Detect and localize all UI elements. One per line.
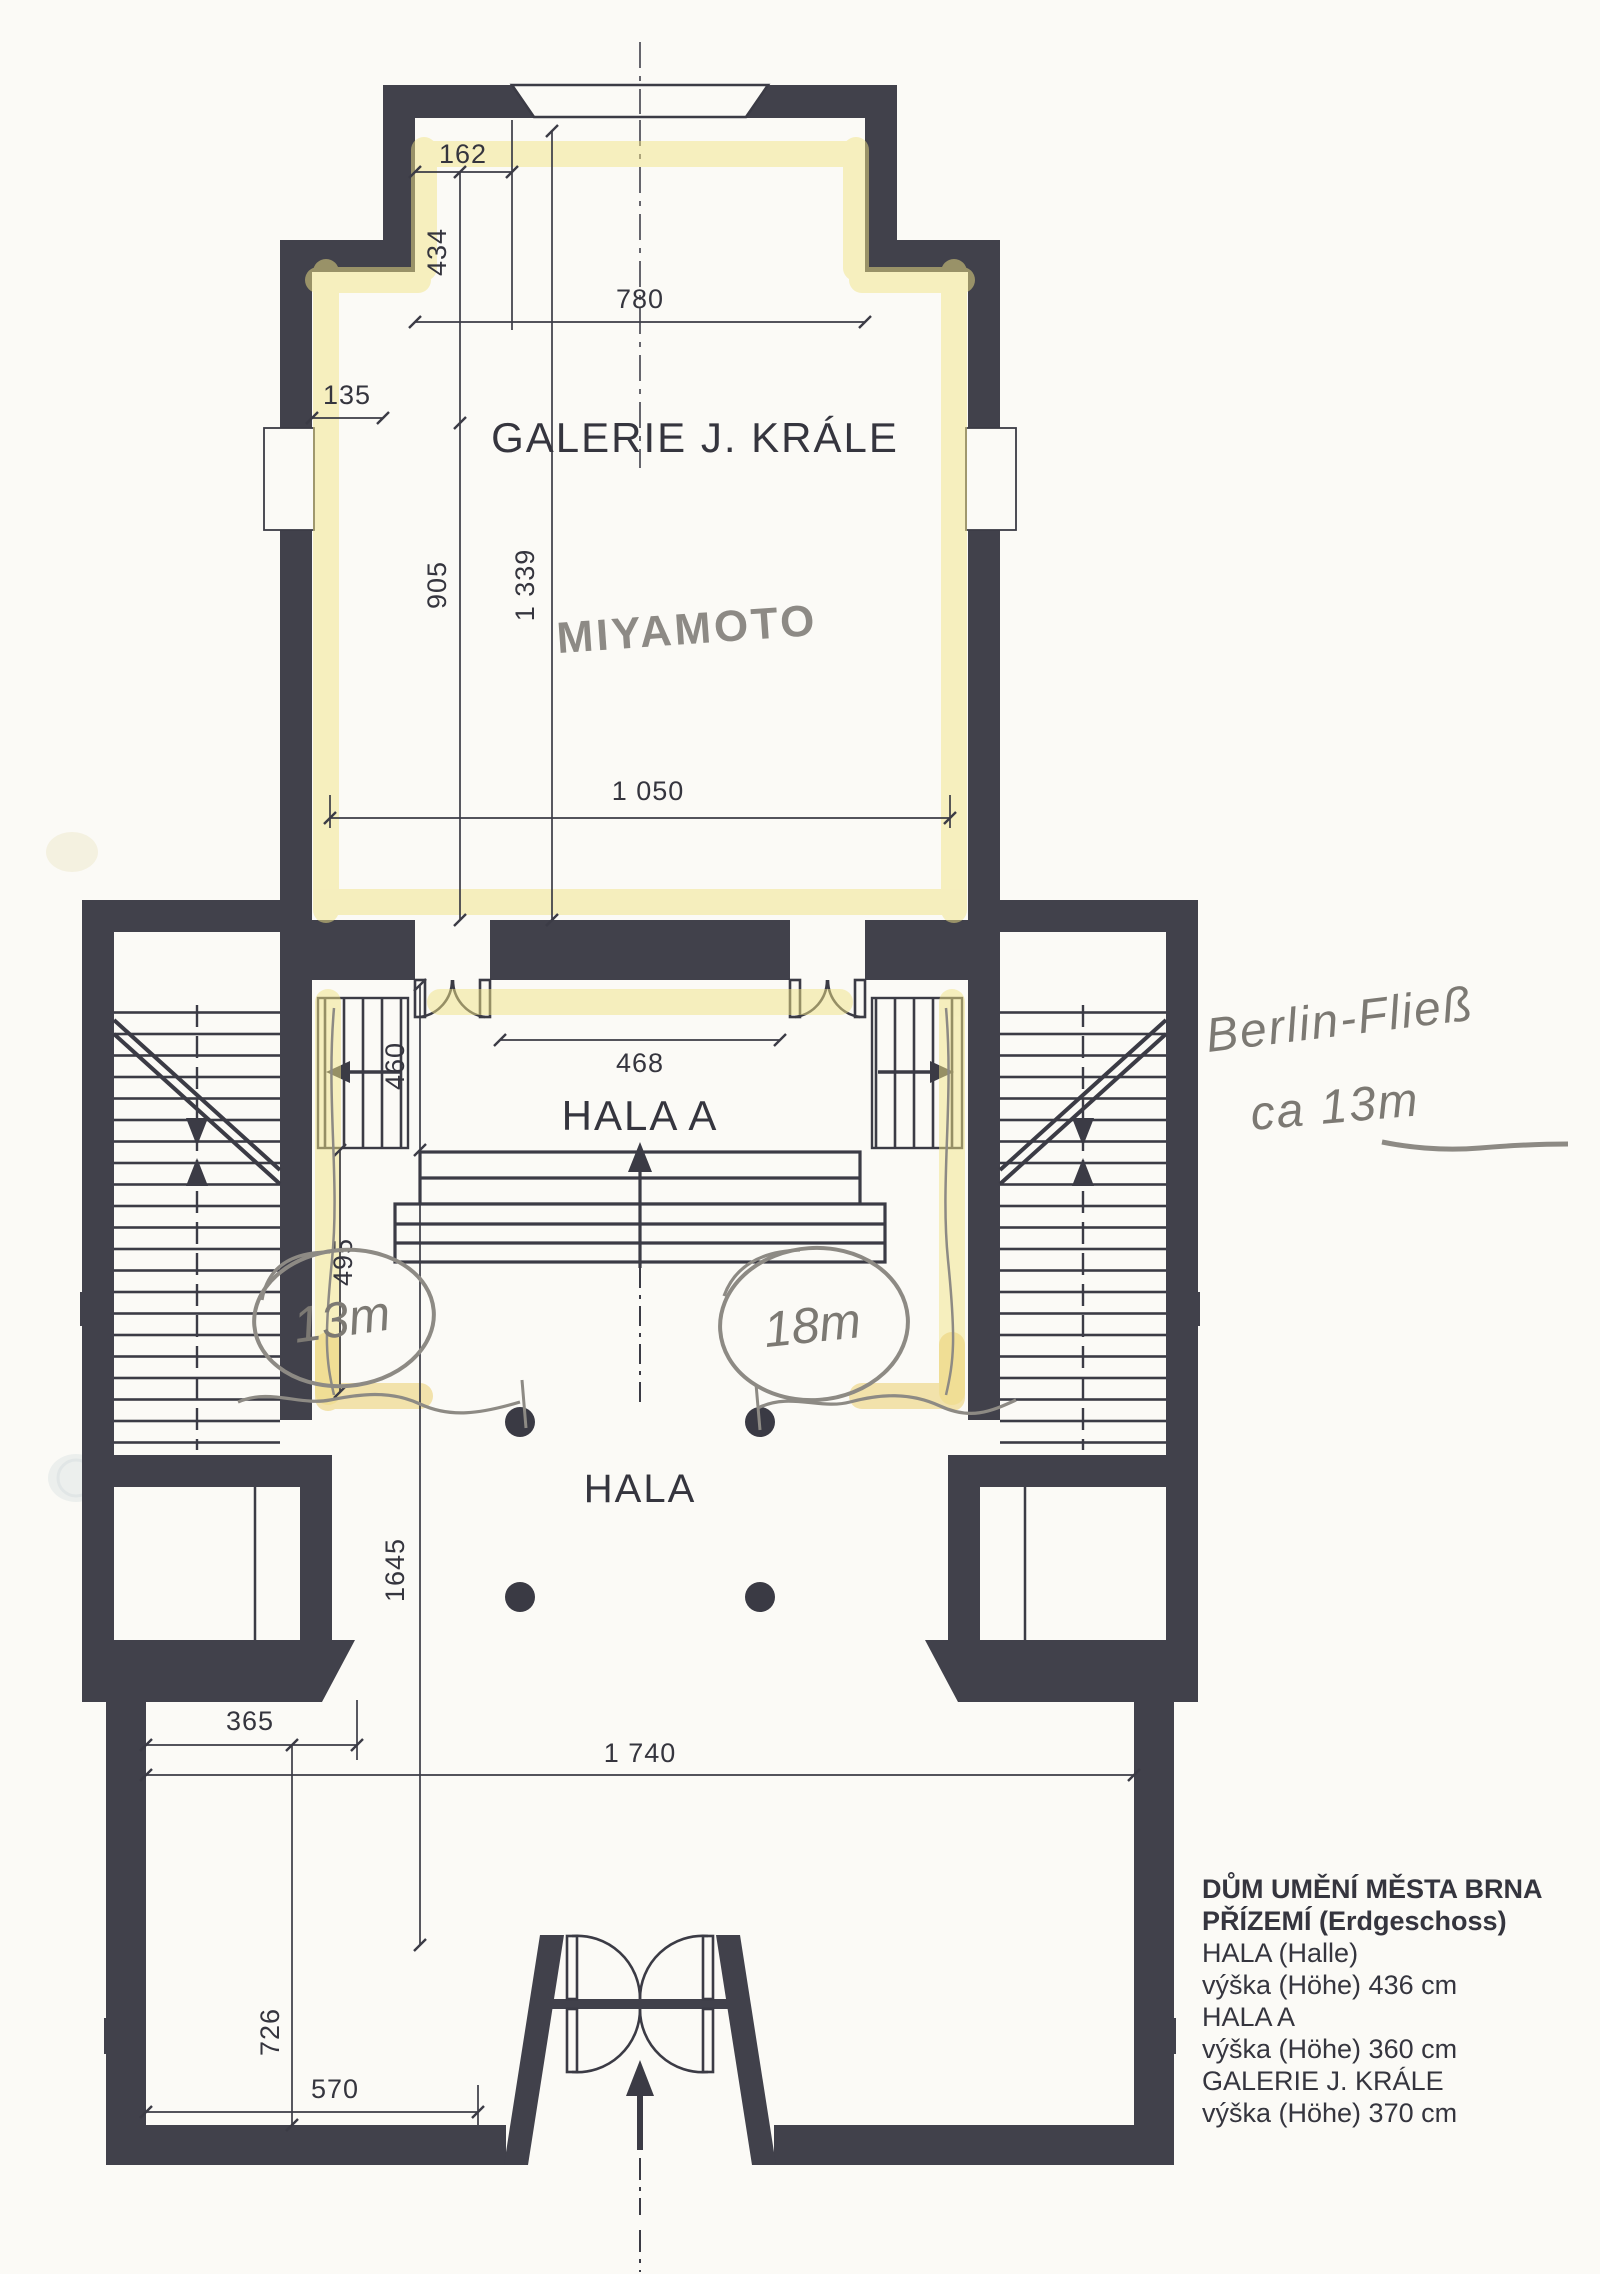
gallery-south-wall-b <box>490 920 790 980</box>
info-line-7: GALERIE J. KRÁLE <box>1202 2066 1444 2096</box>
hala-label: HALA <box>584 1467 697 1511</box>
dim-1050: 1 050 <box>612 776 685 806</box>
hala-a-east-wall <box>968 980 1000 1420</box>
vestibule-east-wall <box>716 1935 776 2165</box>
dim-780: 780 <box>616 284 664 314</box>
floor-plan-svg: 162 434 780 135 905 1 339 1 050 468 460 … <box>0 0 1600 2274</box>
dim-434: 434 <box>422 228 452 276</box>
door-leaf <box>855 980 865 1017</box>
door-leaf <box>703 1936 713 1999</box>
gallery-west-wall <box>280 240 312 980</box>
bay-right-wall <box>865 85 897 272</box>
dim-162: 162 <box>439 139 487 169</box>
dim-468: 468 <box>616 1048 664 1078</box>
entrance <box>626 2060 654 2272</box>
vestibule-west-wall <box>504 1935 564 2165</box>
bottom-room-east-wall <box>1134 1702 1174 2165</box>
bay-left-wall <box>383 85 415 272</box>
info-line-1: DŮM UMĚNÍ MĚSTA BRNA <box>1202 1871 1542 1904</box>
door-swing <box>640 1936 708 1999</box>
dim-1740: 1 740 <box>604 1738 677 1768</box>
dim-726: 726 <box>255 2008 285 2056</box>
door-swing <box>572 2009 640 2072</box>
miyamoto-note: MIYAMOTO <box>555 596 819 663</box>
west-wing-room <box>114 1487 300 1640</box>
info-block: DŮM UMĚNÍ MĚSTA BRNA PŘÍZEMÍ (Erdgeschos… <box>1202 1871 1542 2128</box>
bottom-room-west-wall <box>106 1702 146 2165</box>
hala-a-west-wall <box>280 980 312 1420</box>
hala-a-label: HALA A <box>562 1092 719 1139</box>
dim-905: 905 <box>422 561 452 609</box>
bottom-wall-right <box>774 2125 1174 2165</box>
door-leaf <box>567 2009 577 2072</box>
gallery-south-wall-c <box>865 920 1000 980</box>
gallery-south-wall-a <box>280 920 415 980</box>
dim-460: 460 <box>380 1042 410 1090</box>
info-line-3: HALA (Halle) <box>1202 1938 1358 1968</box>
galerie-label: GALERIE J. KRÁLE <box>491 414 899 461</box>
berlin-note-line-2: ca 13m <box>1248 1073 1421 1141</box>
dim-1339: 1 339 <box>510 549 540 622</box>
east-wing-slanted-wall <box>925 1640 1198 1702</box>
entrance-arrow-shaft <box>637 2096 643 2150</box>
info-line-5: HALA A <box>1202 2002 1295 2032</box>
dim-365: 365 <box>226 1706 274 1736</box>
pillar <box>1166 1292 1200 1326</box>
column-dot <box>505 1582 535 1612</box>
scanned-floor-plan-page: 162 434 780 135 905 1 339 1 050 468 460 … <box>0 0 1600 2274</box>
bottom-wall-left <box>106 2125 506 2165</box>
entrance-arrow-icon <box>626 2060 654 2096</box>
gallery-east-niche <box>966 428 1016 530</box>
pillar <box>1140 2018 1176 2054</box>
west-wing-slanted-wall <box>82 1640 355 1702</box>
wall-length-left-note: 13m <box>290 1285 394 1354</box>
door-leaf <box>567 1936 577 1999</box>
door-leaf <box>703 2009 713 2072</box>
berlin-fliess-note: Berlin-Fließ ca 13m <box>1203 977 1568 1149</box>
pillar <box>104 2018 140 2054</box>
dim-570: 570 <box>311 2074 359 2104</box>
info-line-4: výška (Höhe) 436 cm <box>1202 1970 1457 2000</box>
info-line-2: PŘÍZEMÍ (Erdgeschoss) <box>1202 1905 1507 1936</box>
stairs-east <box>1000 1005 1166 1455</box>
gallery-west-niche <box>264 428 314 530</box>
wall-length-right-note: 18m <box>761 1292 864 1358</box>
dim-1645: 1645 <box>380 1538 410 1602</box>
gallery-east-wall <box>968 240 1000 980</box>
vestibule-threshold <box>540 1999 740 2009</box>
east-wing-room <box>980 1487 1166 1640</box>
door-swing <box>572 1936 640 1999</box>
column-dot <box>505 1407 535 1437</box>
info-line-6: výška (Höhe) 360 cm <box>1202 2034 1457 2064</box>
info-line-8: výška (Höhe) 370 cm <box>1202 2098 1457 2128</box>
stairs-west <box>114 1005 280 1455</box>
door-swing <box>640 2009 708 2072</box>
dim-135: 135 <box>323 380 371 410</box>
berlin-note-line-1: Berlin-Fließ <box>1203 977 1477 1062</box>
pillar <box>80 1292 114 1326</box>
pencil-underline <box>1382 1142 1568 1149</box>
column-dot <box>745 1582 775 1612</box>
